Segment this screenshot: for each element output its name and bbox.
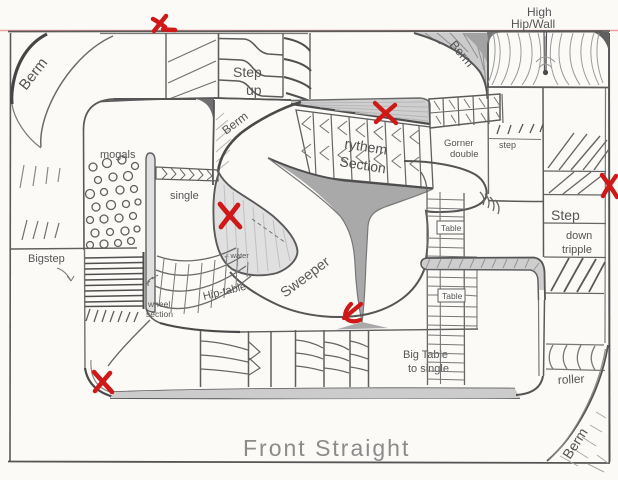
svg-text:single: single <box>170 190 199 202</box>
svg-text:Gorner: Gorner <box>444 138 474 149</box>
svg-text:wheel: wheel <box>147 299 170 309</box>
svg-text:Big Table: Big Table <box>403 349 448 361</box>
svg-text:Bigstep: Bigstep <box>28 253 65 265</box>
svg-text:double: double <box>450 149 479 160</box>
svg-text:Hip/Wall: Hip/Wall <box>511 17 555 31</box>
svg-text:roller: roller <box>557 372 584 387</box>
svg-text:tripple: tripple <box>562 244 592 256</box>
svg-text:Table: Table <box>442 291 463 301</box>
svg-text:to single: to single <box>408 363 449 375</box>
svg-text:Front Straight: Front Straight <box>243 435 410 461</box>
svg-text:Table: Table <box>441 223 462 233</box>
svg-text:Step: Step <box>233 64 262 80</box>
svg-text:step: step <box>499 140 516 150</box>
svg-text:Step: Step <box>551 207 580 223</box>
svg-text:up: up <box>246 82 262 98</box>
svg-text:section: section <box>146 309 173 319</box>
svg-text:down: down <box>566 230 592 242</box>
